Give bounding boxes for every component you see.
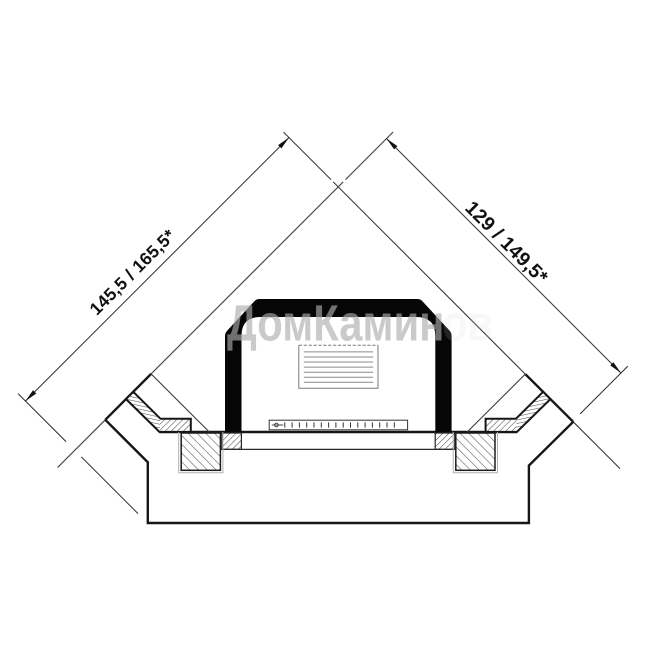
svg-text:ДомКамин: ДомКамин: [227, 295, 444, 352]
svg-text:ов: ов: [442, 295, 493, 352]
